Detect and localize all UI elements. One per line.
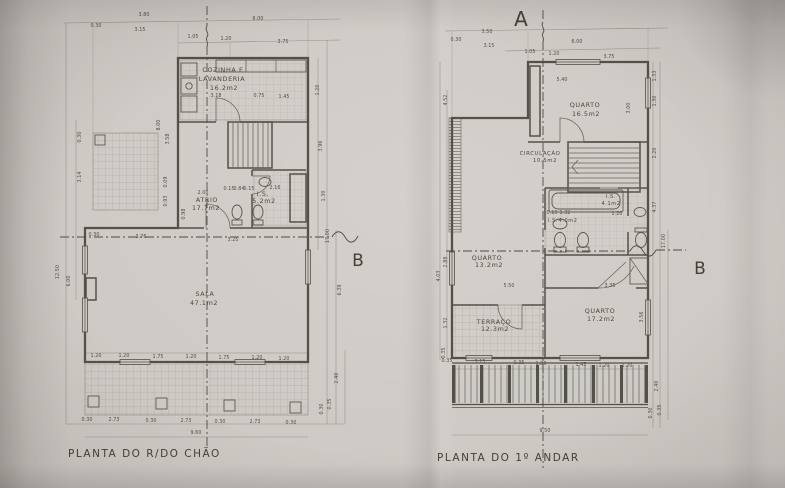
room-area: 5.2m2 <box>252 197 275 205</box>
dim-label: 1.75 <box>152 354 163 360</box>
room-area: 4.1m2 <box>601 201 620 207</box>
dim-label: 1.20 <box>278 356 289 362</box>
dim-label: 1.30 <box>652 95 658 106</box>
stairs <box>568 148 640 188</box>
dim-label: 3.96 <box>318 140 324 151</box>
room-label: COZINHA E <box>202 66 243 74</box>
stair-direction-arrow <box>572 160 578 174</box>
room-label: QUARTO <box>570 101 601 109</box>
dim-label: 1.05 <box>187 34 198 40</box>
plan-title-first-floor: PLANTA DO 1º ANDAR <box>437 452 580 464</box>
door-arc <box>560 118 584 142</box>
wardrobe <box>530 66 540 136</box>
dim-label: 2.73 <box>108 417 119 423</box>
dim-label: 3.18 <box>210 93 221 99</box>
wall-pier <box>86 278 96 300</box>
dim-label: 0.35 <box>441 358 452 364</box>
dim-label: 3.15 <box>474 359 485 365</box>
dim-label: 0.30 <box>81 417 92 423</box>
dim-label: 3.75 <box>603 54 614 60</box>
dim-label: 2.88 <box>443 256 449 267</box>
dim-label: 6.00 <box>571 39 582 45</box>
dim-label: 12.50 <box>55 265 61 279</box>
room-area: 12.3m2 <box>481 325 509 333</box>
room-label: I.S. <box>548 218 558 224</box>
dim-label: 0.30 <box>450 37 461 43</box>
dim-label: 1.20 <box>548 51 559 57</box>
dim-label: 1.20 <box>90 353 101 359</box>
room-label: ATRIO <box>196 196 218 204</box>
dim-label: 0.09 <box>163 176 169 187</box>
section-marker-b: B <box>352 251 364 271</box>
dim-label: 0.15 <box>243 186 254 192</box>
dim-label: 1.75 <box>218 355 229 361</box>
dim-label: 3.75 <box>277 39 288 45</box>
room-area: 16.2m2 <box>210 84 238 92</box>
dim-label: 0.15 <box>546 210 557 216</box>
extension-lines <box>452 28 648 118</box>
dim-label: 3.76 <box>135 234 146 240</box>
dim-label: 1.32 <box>443 317 449 328</box>
terrace-tiled-area <box>85 362 308 415</box>
dim-label: 4.03 <box>436 270 442 281</box>
dim-label: 1.45 <box>575 362 586 368</box>
hatched-wall <box>449 118 461 232</box>
floor-plan-drawing: COZINHA E LAVANDERIA 16.2m2 ATRIO 17.7m2… <box>0 0 785 488</box>
dim-label: 0.30 <box>90 23 101 29</box>
dim-label: 0.98 <box>181 208 187 219</box>
dim-label: 1.20 <box>118 353 129 359</box>
dim-label: 3.58 <box>165 133 171 144</box>
dim-label: 1.32 <box>559 210 570 216</box>
dim-label: 1.30 <box>321 190 327 201</box>
dim-label: 3.15 <box>483 43 494 49</box>
toilet <box>232 205 242 219</box>
dim-label: 2.40 <box>334 372 340 383</box>
dim-label: 3.50 <box>481 29 492 35</box>
dim-label: 5.40 <box>556 77 567 83</box>
dim-label: 3.00 <box>626 102 632 113</box>
dim-label: 1.05 <box>524 49 535 55</box>
stairs <box>233 122 268 168</box>
room-label: SALA <box>195 290 214 298</box>
room-area: 17.2m2 <box>587 315 615 323</box>
dim-label: 0.30 <box>88 232 99 238</box>
dim-label: 0.35 <box>327 398 333 409</box>
dim-label: 17.00 <box>661 234 667 248</box>
dim-label: 0.93 <box>163 195 169 206</box>
room-area: 10.5m2 <box>533 158 557 164</box>
dim-label: 5.50 <box>503 283 514 289</box>
dim-label: 3.25 <box>227 237 238 243</box>
section-marker-b: B <box>694 259 706 279</box>
dim-label: 0.75 <box>253 93 264 99</box>
dim-label: 6.39 <box>337 284 343 295</box>
room-label: QUARTO <box>585 307 616 315</box>
dim-label: 0.35 <box>657 404 663 415</box>
room-area: 17.7m2 <box>192 204 220 212</box>
dim-label: 0.30 <box>648 407 654 418</box>
dim-label: 3.80 <box>138 12 149 18</box>
room-label: LAVANDERIA <box>199 75 245 83</box>
dim-label: 6.00 <box>252 16 263 22</box>
dim-label: 2.73 <box>249 419 260 425</box>
ground-floor-plan: COZINHA E LAVANDERIA 16.2m2 ATRIO 17.7m2… <box>60 6 364 460</box>
room-area: 4.0m2 <box>558 218 577 224</box>
dim-label: 2.00 <box>197 190 208 196</box>
room-label: I.S. <box>606 194 616 200</box>
dim-label: 1.20 <box>251 355 262 361</box>
dim-label: 1.20 <box>621 363 632 369</box>
room-label: CIRCULAÇÃO <box>520 150 561 157</box>
room-area: 13.2m2 <box>475 261 503 269</box>
dim-label: 2.73 <box>180 418 191 424</box>
dim-label: 0.30 <box>285 420 296 426</box>
dim-label: 0.30 <box>214 419 225 425</box>
dim-label: 0.30 <box>77 131 83 142</box>
dim-label: 1.45 <box>278 94 289 100</box>
dim-label: 0.35 <box>513 360 524 366</box>
room-area: 16.5m2 <box>572 110 600 118</box>
dim-label: 0.35 <box>441 347 447 358</box>
dim-label: 8.00 <box>156 119 162 130</box>
dim-label: 0.30 <box>145 418 156 424</box>
section-marker-a: A <box>514 7 528 31</box>
dim-label: 2.40 <box>654 380 660 391</box>
dim-label: 1.20 <box>611 211 622 217</box>
plan-title-ground-floor: PLANTA DO R/DO CHÃO <box>68 447 221 460</box>
line-break-symbol <box>206 26 208 46</box>
dim-label: 1.20 <box>598 363 609 369</box>
dim-label: 1.20 <box>315 84 321 95</box>
dim-label: 3.15 <box>134 27 145 33</box>
dim-label: 0.30 <box>319 403 325 414</box>
dim-label: 1.80 <box>535 361 546 367</box>
balcony <box>452 363 648 408</box>
dim-label: 9.60 <box>190 430 201 436</box>
dim-label: 3.35 <box>604 283 615 289</box>
room-area: 47.1m2 <box>190 299 218 307</box>
dim-label: 4.37 <box>652 201 658 212</box>
dim-label: 17.00 <box>325 229 331 243</box>
dim-label: 3.14 <box>77 171 83 182</box>
dim-label: 2.20 <box>652 147 658 158</box>
dim-label: 3.56 <box>639 311 645 322</box>
dim-label: 9.50 <box>539 428 550 434</box>
dim-label: 4.52 <box>443 94 449 105</box>
line-break-symbol <box>542 22 544 41</box>
door-arc <box>598 266 634 288</box>
dim-label: 6.00 <box>66 275 72 286</box>
dim-label: 1.20 <box>220 36 231 42</box>
photographed-drawing-sheet: COZINHA E LAVANDERIA 16.2m2 ATRIO 17.7m2… <box>0 0 785 488</box>
dim-label: 1.20 <box>185 354 196 360</box>
dim-label: 2.16 <box>269 185 280 191</box>
dim-label: 1.33 <box>652 70 658 81</box>
